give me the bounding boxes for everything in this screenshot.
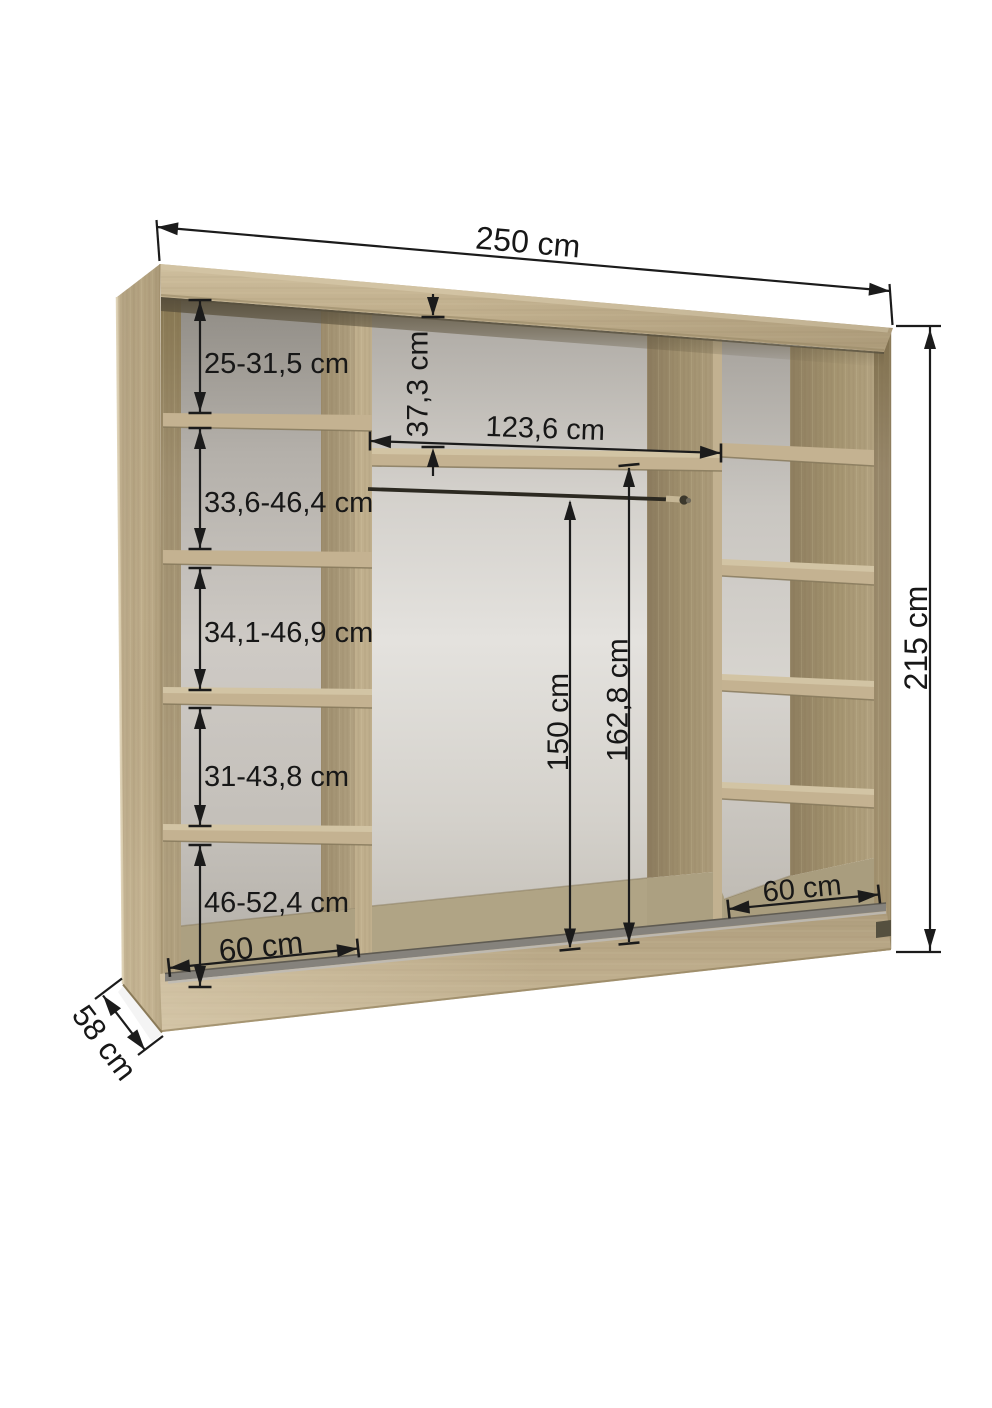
svg-text:37,3 cm: 37,3 cm <box>402 331 435 438</box>
svg-text:34,1-46,9 cm: 34,1-46,9 cm <box>204 617 373 649</box>
svg-text:215 cm: 215 cm <box>898 586 934 691</box>
svg-text:31-43,8 cm: 31-43,8 cm <box>204 761 349 793</box>
svg-text:46-52,4 cm: 46-52,4 cm <box>204 887 349 919</box>
svg-text:123,6 cm: 123,6 cm <box>485 411 605 447</box>
svg-text:33,6-46,4 cm: 33,6-46,4 cm <box>204 487 373 519</box>
svg-text:25-31,5 cm: 25-31,5 cm <box>204 348 349 380</box>
svg-text:150 cm: 150 cm <box>542 673 575 771</box>
svg-text:162,8 cm: 162,8 cm <box>602 638 635 761</box>
